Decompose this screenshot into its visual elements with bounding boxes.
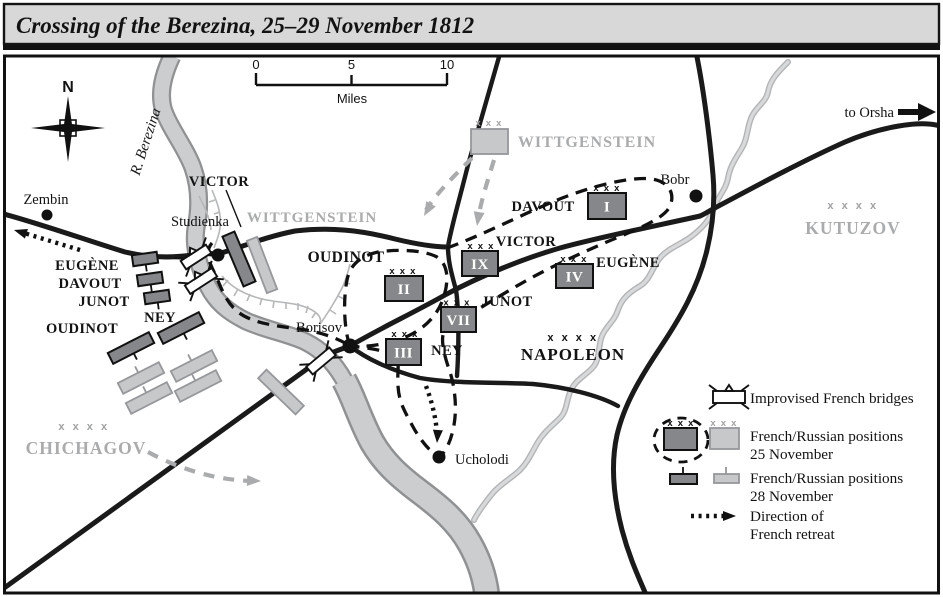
- army-label-napoleon: NAPOLEON: [521, 345, 625, 364]
- legend-retreat-line2: French retreat: [750, 526, 836, 543]
- corps-label-oudinot-center: OUDINOT: [308, 249, 385, 266]
- town-label-studienka: Studienka: [171, 214, 230, 230]
- corps-numeral-iii: III: [394, 346, 413, 362]
- corps-vii-rank: x x x: [443, 298, 470, 309]
- to-orsha-label: to Orsha: [844, 105, 894, 121]
- legend-pos25-line2: 25 November: [750, 446, 833, 463]
- legend-pos28-line2: 28 November: [750, 488, 833, 505]
- title-bar: Crossing of the Berezina, 25–29 November…: [3, 4, 940, 50]
- corps-label-ney-east: NEY: [431, 343, 463, 359]
- corps-ii-rank: x x x: [389, 266, 416, 277]
- army-label-wittgenstein-main: WITTGENSTEIN: [518, 134, 656, 151]
- corps-numeral-iv: IV: [566, 270, 584, 286]
- town-label-bobr: Bobr: [661, 172, 690, 188]
- corps-label-davout-west: DAVOUT: [58, 276, 121, 292]
- corps-numeral-i: I: [604, 200, 610, 216]
- corps-label-victor-west: VICTOR: [189, 174, 249, 190]
- chichagov-rank: x x x x: [58, 421, 109, 433]
- borisov-dot: [343, 339, 358, 354]
- legend-russian25-icon: [710, 428, 739, 449]
- town-label-zembin: Zembin: [23, 192, 69, 208]
- corps-label-oudinot-west: OUDINOT: [46, 321, 118, 337]
- title-bar-rule: [3, 45, 940, 50]
- corps-label-ney-west: NEY: [144, 310, 176, 326]
- compass-north-label: N: [62, 79, 74, 96]
- russian-wittgenstein-box: [471, 129, 508, 154]
- scale-tick-0: 0: [252, 57, 259, 72]
- legend-french25-icon: [664, 428, 697, 450]
- army-label-wittgenstein-west: WITTGENSTEIN: [247, 210, 377, 226]
- army-label-chichagov: CHICHAGOV: [26, 438, 147, 458]
- map-title: Crossing of the Berezina, 25–29 November…: [16, 13, 474, 38]
- bobr-dot: [690, 190, 703, 203]
- map-page: x x x I x x x IX x x x II x x x IV x x x…: [0, 0, 943, 597]
- scale-unit-label: Miles: [337, 91, 368, 106]
- ucholodi-dot: [433, 451, 446, 464]
- corps-numeral-ix: IX: [471, 257, 489, 273]
- army-label-kutuzov: KUTUZOV: [805, 218, 900, 238]
- wittgenstein-box-rank: x x x: [475, 118, 502, 129]
- corps-numeral-vii: VII: [446, 313, 470, 329]
- kutuzov-rank: x x x x: [827, 200, 878, 212]
- to-orsha: to Orsha: [844, 103, 936, 121]
- scale-tick-10: 10: [440, 57, 454, 72]
- legend-bridges-label: Improvised French bridges: [750, 390, 914, 407]
- zembin-dot: [42, 210, 53, 221]
- legend-retreat-line1: Direction of: [750, 508, 825, 525]
- corps-i-rank: x x x: [593, 183, 620, 194]
- corps-ix-rank: x x x: [467, 241, 494, 252]
- corps-iv-rank: x x x: [560, 254, 587, 265]
- studienka-dot: [212, 249, 225, 262]
- legend-pos25-line1: French/Russian positions: [750, 428, 903, 445]
- town-label-ucholodi: Ucholodi: [455, 452, 509, 468]
- corps-label-eugene-west: EUGÈNE: [55, 257, 119, 274]
- map-svg: x x x I x x x IX x x x II x x x IV x x x…: [0, 0, 943, 597]
- corps-numeral-ii: II: [398, 282, 411, 298]
- corps-label-junot-west: JUNOT: [78, 294, 129, 310]
- corps-label-junot-east: JUNOT: [481, 294, 532, 310]
- corps-label-davout-east: DAVOUT: [511, 199, 574, 215]
- town-label-borisov: Borisov: [296, 320, 343, 336]
- corps-label-eugene-east: EUGÈNE: [596, 254, 660, 271]
- napoleon-rank: x x x x: [547, 332, 598, 344]
- corps-label-victor-east: VICTOR: [496, 234, 556, 250]
- scale-tick-5: 5: [348, 57, 355, 72]
- corps-iii-rank: x x x: [391, 329, 418, 340]
- legend-pos28-line1: French/Russian positions: [750, 470, 903, 487]
